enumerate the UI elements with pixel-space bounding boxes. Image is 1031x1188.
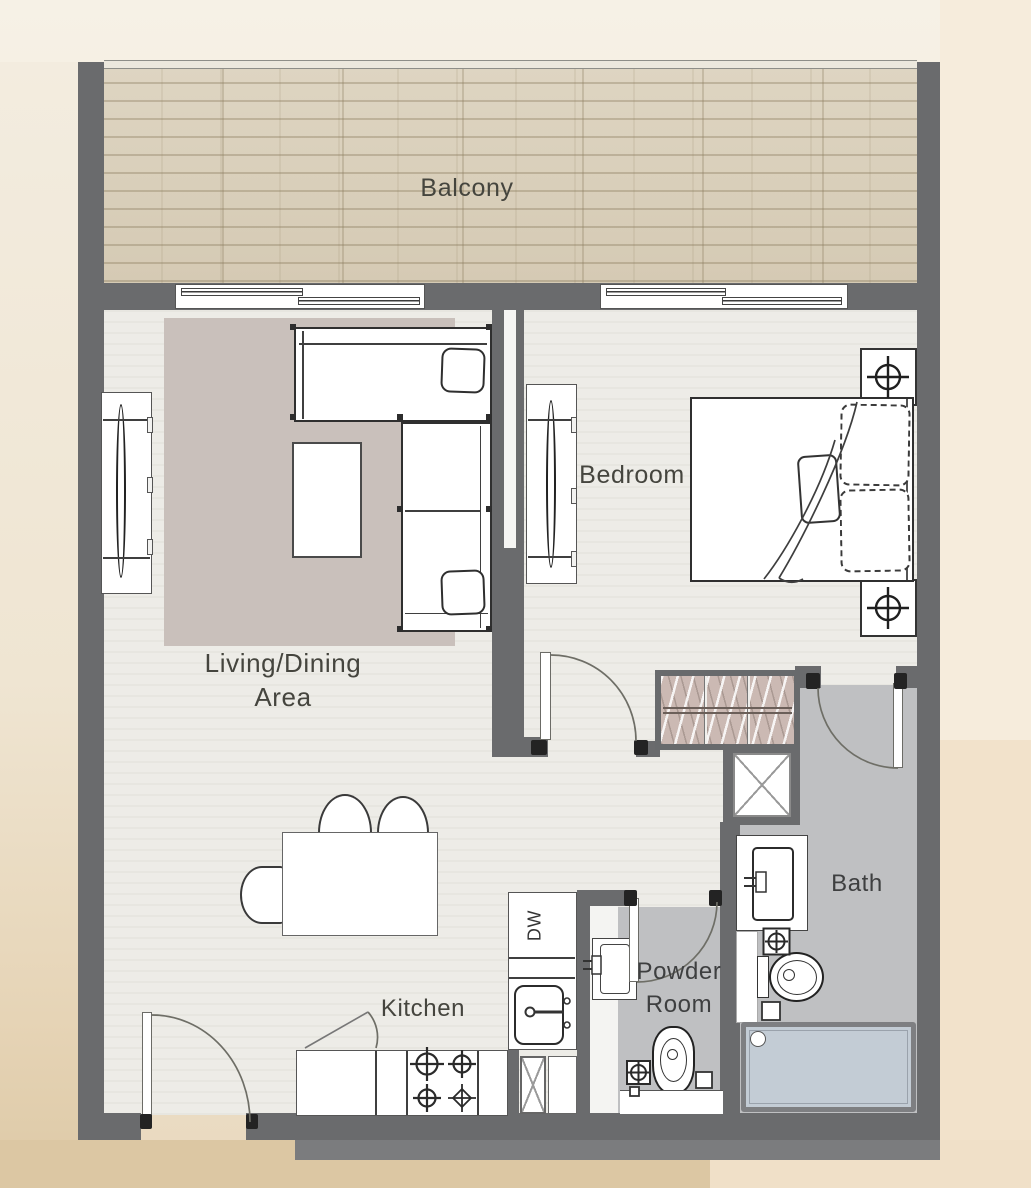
counter-divider xyxy=(509,977,575,979)
wall-kitchen-right xyxy=(577,890,590,1116)
bathtub xyxy=(741,1022,916,1112)
wardrobe xyxy=(655,670,800,750)
floor-plan: Balcony Living/Dining Area Bedroom Kitch… xyxy=(0,0,1031,1188)
bedroom-door-jamb xyxy=(531,740,547,755)
balcony-label: Balcony xyxy=(392,174,542,203)
wardrobe-divider xyxy=(704,676,707,744)
bathtub-drain-icon xyxy=(750,1031,766,1047)
wall-bottom-left xyxy=(78,1113,141,1140)
counter-divider xyxy=(509,957,575,959)
wardrobe-rail xyxy=(663,712,792,714)
wall-bottom-main xyxy=(246,1113,940,1140)
console-knob xyxy=(147,539,153,555)
console-knob xyxy=(147,417,153,433)
sliding-door-living-panel-right xyxy=(298,297,420,305)
powder-ledge xyxy=(620,1090,723,1114)
bed-cushion xyxy=(797,454,842,525)
dining-chair xyxy=(240,866,284,924)
powder-label-line2: Room xyxy=(613,991,745,1019)
service-shaft xyxy=(733,753,791,817)
wall-powder-top-stub xyxy=(590,890,626,906)
balcony-railing xyxy=(104,60,917,69)
nightstand xyxy=(860,579,917,637)
sofa-backrest-line xyxy=(299,343,487,345)
wall-cavity xyxy=(504,310,516,548)
bed-pillow xyxy=(839,403,910,486)
entry-door-leaf xyxy=(142,1012,152,1122)
console-line xyxy=(103,419,150,421)
bath-door-leaf xyxy=(893,683,903,768)
bath-door-jamb xyxy=(806,673,820,689)
bath-toilet-tank xyxy=(757,956,769,998)
console-knob xyxy=(571,551,577,567)
bed-pillow xyxy=(839,488,910,572)
sliding-door-bedroom-panel-right xyxy=(722,297,842,305)
kitchen-corner-cabinet xyxy=(548,1056,577,1114)
bathtub-inner-line xyxy=(749,1030,908,1104)
living-label-line1: Living/Dining xyxy=(158,648,408,679)
kitchen-shaft xyxy=(520,1056,546,1114)
console-line xyxy=(528,556,575,558)
background-right-strip xyxy=(940,0,1031,740)
powder-door-jamb xyxy=(709,890,722,906)
bedroom-label: Bedroom xyxy=(557,461,707,490)
wardrobe-rail xyxy=(663,707,792,709)
bedroom-door-jamb xyxy=(634,740,648,755)
sofa-pillow xyxy=(440,347,486,394)
sofa-armrest-line xyxy=(302,331,304,419)
console-line xyxy=(528,419,575,421)
wardrobe-divider xyxy=(747,676,750,744)
console-knob xyxy=(147,477,153,493)
entry-door-jamb xyxy=(140,1114,152,1129)
entry-door-jamb xyxy=(246,1114,258,1129)
powder-toilet-inner xyxy=(660,1038,687,1082)
counter-divider xyxy=(406,1051,408,1115)
wall-left xyxy=(78,62,104,1140)
background-left-strip xyxy=(0,62,78,1188)
bath-label: Bath xyxy=(814,870,900,898)
kitchen-sink xyxy=(514,985,564,1045)
tv-icon xyxy=(546,400,556,568)
counter-divider xyxy=(375,1051,377,1115)
powder-label-line1: Powder xyxy=(613,958,745,986)
sofa-seat-line xyxy=(405,510,481,512)
bedroom-door-leaf xyxy=(540,652,551,740)
sliding-door-living-panel-left xyxy=(181,288,303,296)
console-knob xyxy=(571,417,577,433)
living-label-line2: Area xyxy=(158,682,408,713)
tv-console-living xyxy=(101,392,152,594)
kitchen-label: Kitchen xyxy=(358,995,488,1023)
counter-divider xyxy=(477,1051,479,1115)
wall-right xyxy=(917,62,940,1140)
sofa-pillow xyxy=(440,569,486,616)
wall-bottom-shadow xyxy=(295,1140,940,1160)
console-knob xyxy=(571,488,577,504)
coffee-table xyxy=(292,442,362,558)
powder-door-jamb xyxy=(624,890,637,906)
bath-door-jamb xyxy=(894,673,907,689)
dining-table xyxy=(282,832,438,936)
bath-sink xyxy=(752,847,794,921)
dishwasher-label: DW xyxy=(525,896,546,956)
console-line xyxy=(103,557,150,559)
wall-kitchen-corner-stub xyxy=(508,1050,519,1116)
bath-toilet-drain xyxy=(783,969,795,981)
sliding-door-bedroom-panel-left xyxy=(606,288,726,296)
powder-toilet-drain xyxy=(667,1049,678,1060)
background-right-strip-lower xyxy=(940,740,1031,1188)
tv-icon xyxy=(116,404,126,578)
